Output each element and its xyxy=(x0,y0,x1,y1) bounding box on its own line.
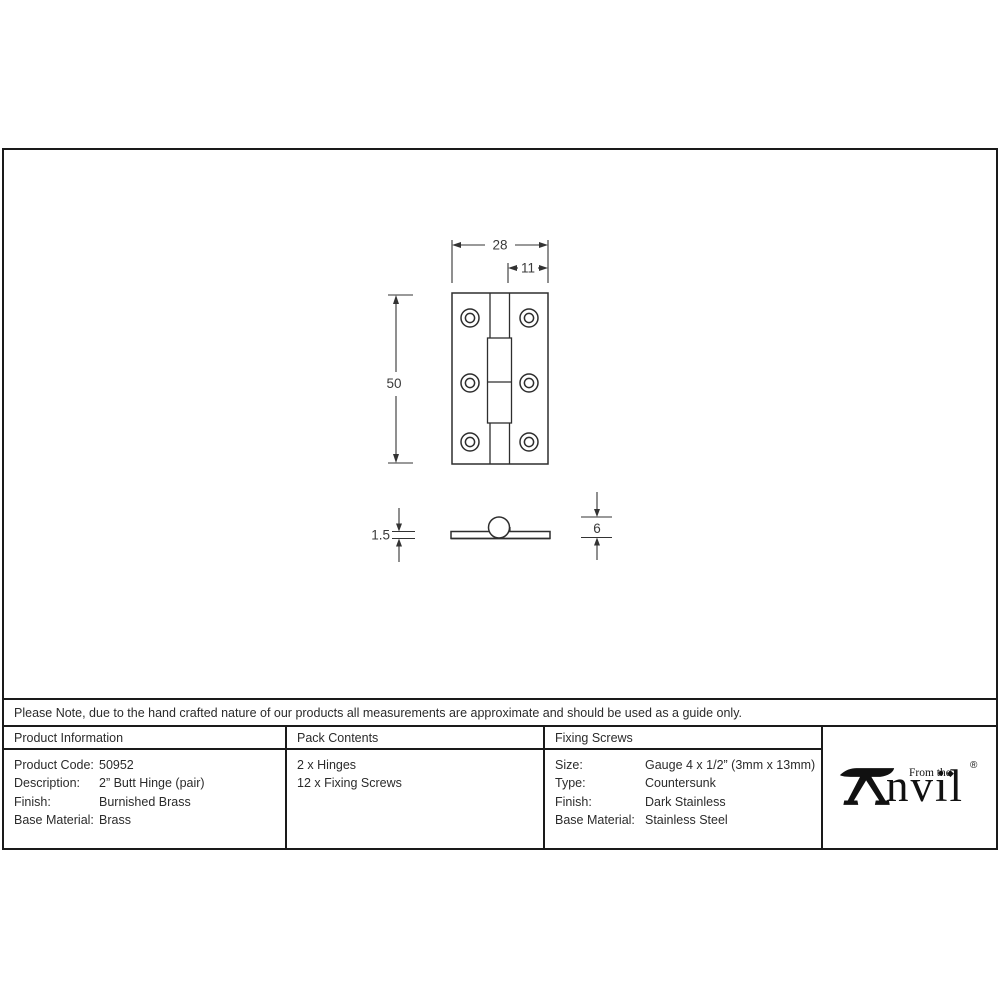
dim-offset-label: 11 xyxy=(521,261,535,276)
spec-sheet-frame: 28 11 50 1.5 6 xyxy=(2,148,998,850)
spec-value: Gauge 4 x 1/2” (3mm x 13mm) xyxy=(645,756,815,774)
product-information-column: Product Information Product Code: 50952 … xyxy=(4,727,287,848)
logo-cell: nvil From the ◆ ® xyxy=(823,727,996,848)
note-text: Please Note, due to the hand crafted nat… xyxy=(14,706,742,720)
hinge-side-view xyxy=(451,517,550,539)
hinge-drawing-svg: 28 11 50 1.5 6 xyxy=(4,150,996,698)
column-header-product-information: Product Information xyxy=(4,727,285,750)
table-row: 12 x Fixing Screws xyxy=(297,774,533,792)
spec-label: Base Material: xyxy=(14,811,99,829)
table-row: Description: 2” Butt Hinge (pair) xyxy=(14,774,275,792)
pack-item: 2 x Hinges xyxy=(297,756,356,774)
fixing-screws-body: Size: Gauge 4 x 1/2” (3mm x 13mm) Type: … xyxy=(545,750,821,829)
spec-value: Burnished Brass xyxy=(99,793,191,811)
dim-height-label: 50 xyxy=(386,376,401,391)
spec-sheet-page: 28 11 50 1.5 6 xyxy=(0,0,1000,1000)
table-row: Base Material: Brass xyxy=(14,811,275,829)
technical-drawing: 28 11 50 1.5 6 xyxy=(4,150,996,698)
fixing-screws-column: Fixing Screws Size: Gauge 4 x 1/2” (3mm … xyxy=(545,727,823,848)
table-row: Base Material: Stainless Steel xyxy=(555,811,811,829)
dim-width-label: 28 xyxy=(492,238,507,253)
table-row: 2 x Hinges xyxy=(297,756,533,774)
table-row: Size: Gauge 4 x 1/2” (3mm x 13mm) xyxy=(555,756,811,774)
column-header-pack-contents: Pack Contents xyxy=(287,727,543,750)
spec-value: Stainless Steel xyxy=(645,811,728,829)
pack-item: 12 x Fixing Screws xyxy=(297,774,402,792)
table-row: Product Code: 50952 xyxy=(14,756,275,774)
spec-label: Finish: xyxy=(14,793,99,811)
dim-thickness-label: 1.5 xyxy=(371,528,390,543)
spec-value: 50952 xyxy=(99,756,134,774)
registered-trademark-icon: ® xyxy=(970,761,977,771)
hinge-front-view xyxy=(452,293,548,464)
spec-value: Brass xyxy=(99,811,131,829)
note-row: Please Note, due to the hand crafted nat… xyxy=(4,698,996,727)
spec-value: Dark Stainless xyxy=(645,793,726,811)
table-row: Finish: Burnished Brass xyxy=(14,793,275,811)
column-header-fixing-screws: Fixing Screws xyxy=(545,727,821,750)
spec-label: Finish: xyxy=(555,793,645,811)
diamond-dot-icon: ◆ xyxy=(947,769,954,778)
dim-knuckle-label: 6 xyxy=(593,521,601,536)
spec-value: 2” Butt Hinge (pair) xyxy=(99,774,205,792)
spec-label: Product Code: xyxy=(14,756,99,774)
spec-label: Type: xyxy=(555,774,645,792)
spec-label: Base Material: xyxy=(555,811,645,829)
spec-label: Description: xyxy=(14,774,99,792)
pack-contents-body: 2 x Hinges 12 x Fixing Screws xyxy=(287,750,543,793)
product-information-body: Product Code: 50952 Description: 2” Butt… xyxy=(4,750,285,829)
table-row: Finish: Dark Stainless xyxy=(555,793,811,811)
spec-label: Size: xyxy=(555,756,645,774)
spec-value: Countersunk xyxy=(645,774,716,792)
pack-contents-column: Pack Contents 2 x Hinges 12 x Fixing Scr… xyxy=(287,727,545,848)
brand-prefix-text: From the xyxy=(909,768,951,779)
spec-table: Product Information Product Code: 50952 … xyxy=(4,727,996,848)
table-row: Type: Countersunk xyxy=(555,774,811,792)
brand-logo: nvil From the ◆ ® xyxy=(823,727,996,848)
